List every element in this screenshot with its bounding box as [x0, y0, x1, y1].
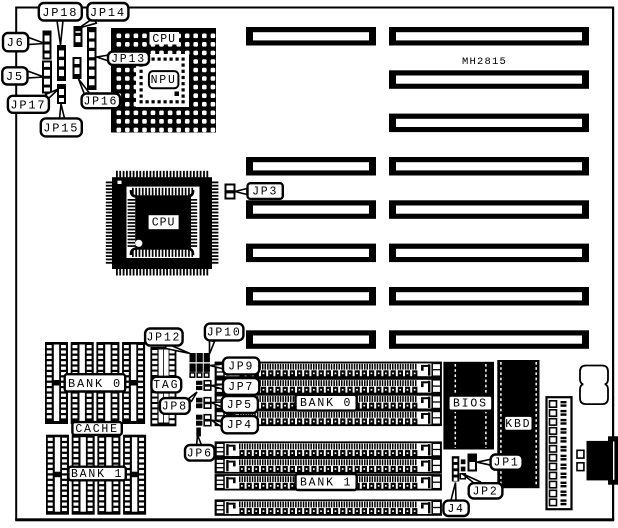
svg-text:BANK 1: BANK 1 — [300, 477, 352, 490]
svg-text:JP3: JP3 — [252, 186, 278, 199]
svg-text:JP14: JP14 — [90, 6, 126, 20]
svg-text:CACHE: CACHE — [75, 423, 119, 436]
svg-text:JP6: JP6 — [187, 447, 213, 460]
svg-text:JP1: JP1 — [494, 457, 520, 470]
svg-text:TAG: TAG — [153, 379, 179, 392]
svg-text:JP5: JP5 — [227, 399, 253, 412]
svg-text:JP15: JP15 — [43, 121, 79, 135]
svg-text:J6: J6 — [7, 36, 25, 50]
svg-text:CPU: CPU — [152, 33, 176, 46]
svg-text:JP2: JP2 — [472, 485, 498, 498]
svg-text:BANK 0: BANK 0 — [68, 377, 122, 391]
svg-text:MH2815: MH2815 — [462, 56, 507, 68]
svg-text:JP18: JP18 — [42, 6, 78, 20]
svg-text:KBD: KBD — [505, 418, 531, 431]
svg-text:JP17: JP17 — [10, 98, 46, 112]
svg-text:BANK 1: BANK 1 — [71, 468, 123, 481]
svg-text:NPU: NPU — [151, 74, 177, 87]
svg-text:J5: J5 — [6, 70, 24, 84]
svg-text:JP10: JP10 — [207, 327, 242, 340]
svg-text:JP13: JP13 — [111, 53, 146, 66]
svg-text:JP4: JP4 — [227, 419, 253, 432]
svg-text:JP7: JP7 — [228, 381, 254, 394]
svg-text:BIOS: BIOS — [453, 398, 488, 411]
svg-text:JP16: JP16 — [83, 95, 118, 108]
svg-text:JP8: JP8 — [162, 400, 188, 413]
svg-text:JP9: JP9 — [228, 361, 254, 374]
svg-text:BANK 0: BANK 0 — [300, 397, 352, 410]
svg-text:JP12: JP12 — [146, 332, 181, 345]
svg-text:J4: J4 — [447, 503, 464, 516]
svg-text:CPU: CPU — [152, 217, 176, 230]
